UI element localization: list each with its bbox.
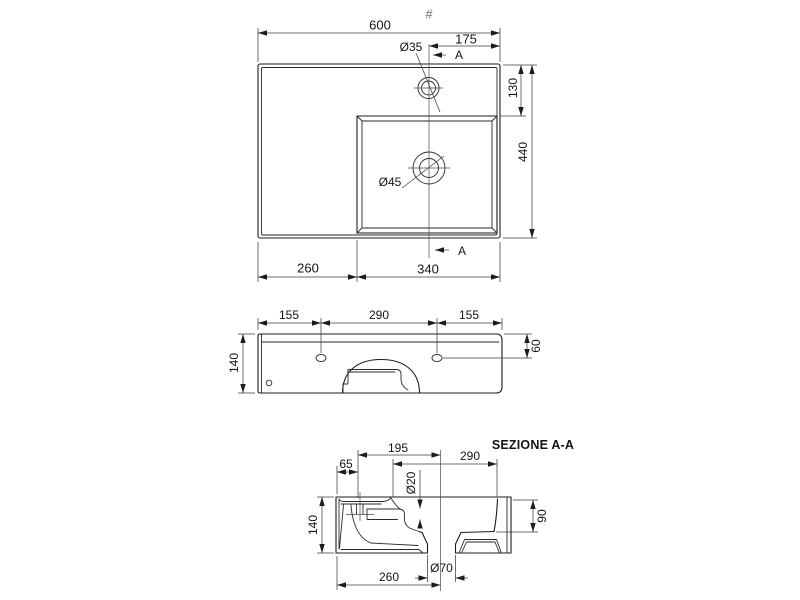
hash-mark: # xyxy=(425,7,433,22)
dim-drain-dia: Ø45 xyxy=(379,175,402,189)
section-marker-a-bottom: A xyxy=(458,244,466,258)
section-title: SEZIONE A-A xyxy=(492,438,574,452)
dim-total-depth: 440 xyxy=(516,142,530,162)
section-deck-and-tap-hole xyxy=(339,492,391,521)
dim-section-drain-dia: Ø70 xyxy=(430,561,453,575)
dim-front-height: 140 xyxy=(227,353,241,373)
section-bowl-profile xyxy=(367,498,498,554)
section-view: SEZIONE A-A xyxy=(306,438,574,591)
dim-bowl-depth: 90 xyxy=(535,509,549,523)
dim-front-left: 155 xyxy=(279,308,299,322)
tap-hole xyxy=(414,78,443,99)
washbasin-technical-drawing: 600 175 Ø35 A 130 440 Ø45 A xyxy=(0,0,800,600)
dim-back-depth: 130 xyxy=(506,78,520,98)
dim-bottom-right: 340 xyxy=(417,262,439,277)
section-pedestal xyxy=(340,505,419,548)
section-marker-a-top: A xyxy=(455,48,463,62)
dim-bowl-width: 290 xyxy=(460,449,480,463)
dim-front-right: 155 xyxy=(459,308,479,322)
dim-front-center: 290 xyxy=(369,308,389,322)
dim-section-height: 140 xyxy=(306,515,320,535)
top-view-outline xyxy=(258,64,500,238)
top-view: 600 175 Ø35 A 130 440 Ø45 A xyxy=(258,18,537,283)
front-view: 155 290 155 140 60 xyxy=(227,308,543,393)
dim-drain-offset: 260 xyxy=(379,570,399,584)
dim-hole-drop: 60 xyxy=(529,339,543,353)
dim-bottom-left: 260 xyxy=(297,261,319,276)
dim-tap-offset: 175 xyxy=(455,32,477,47)
dim-back-offset: 65 xyxy=(339,457,353,471)
technical-drawing-page: 600 175 Ø35 A 130 440 Ø45 A xyxy=(0,0,800,600)
overflow-arch xyxy=(343,360,420,394)
dim-tap-to-drain: 195 xyxy=(388,441,408,455)
top-view-dimensions: 600 175 Ø35 A 130 440 Ø45 A xyxy=(258,18,537,283)
front-view-outline xyxy=(258,334,502,393)
dim-overflow-dia: Ø20 xyxy=(404,471,418,494)
dim-top-width: 600 xyxy=(369,18,391,33)
fixing-holes xyxy=(266,354,442,385)
front-view-dimensions: 155 290 155 140 60 xyxy=(227,308,543,393)
dim-tap-hole-dia: Ø35 xyxy=(400,40,423,54)
section-outline xyxy=(336,497,511,553)
